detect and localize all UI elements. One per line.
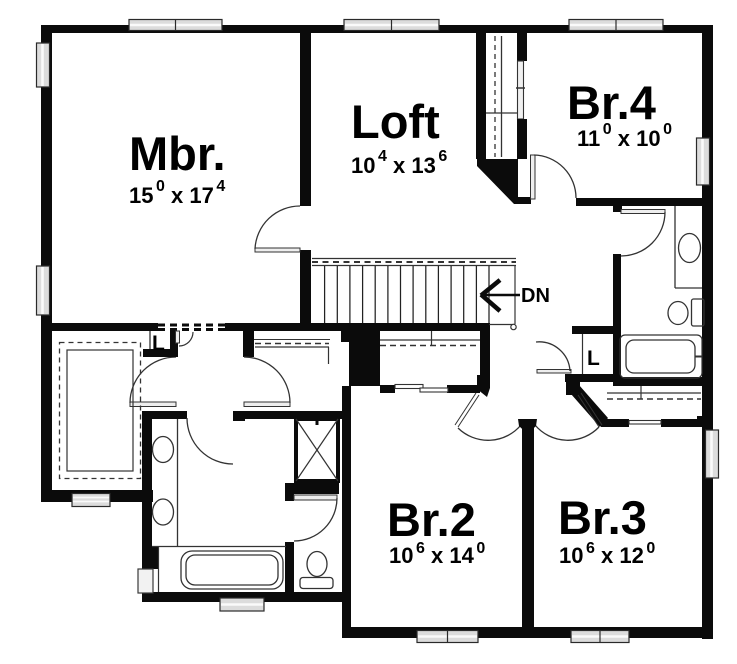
svg-text:L: L [152, 332, 165, 355]
svg-text:L: L [587, 347, 600, 370]
svg-text:150 x 174: 150 x 174 [129, 178, 225, 208]
svg-text:DN: DN [521, 285, 550, 307]
svg-text:Mbr.: Mbr. [129, 127, 226, 180]
svg-text:106 x 120: 106 x 120 [559, 540, 655, 568]
svg-text:Br.2: Br.2 [387, 493, 476, 546]
svg-text:104 x 136: 104 x 136 [351, 148, 447, 178]
svg-text:Br.3: Br.3 [558, 491, 647, 544]
svg-text:Loft: Loft [351, 95, 440, 148]
svg-text:110 x 100: 110 x 100 [577, 121, 672, 151]
svg-text:106 x 140: 106 x 140 [389, 540, 485, 568]
